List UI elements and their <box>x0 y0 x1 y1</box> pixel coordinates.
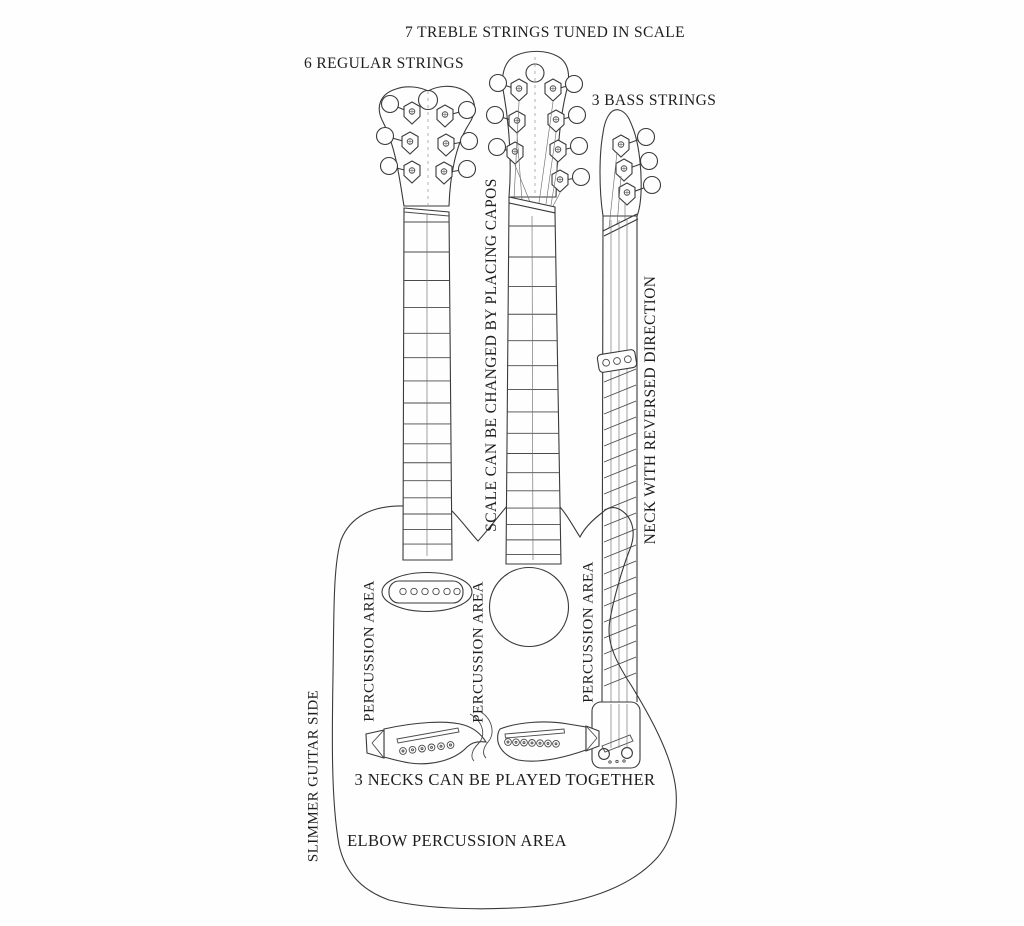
label-reversed-neck: NECK WITH REVERSED DIRECTION <box>642 276 660 545</box>
label-percussion-left: PERCUSSION AREA <box>362 580 379 721</box>
label-slimmer-side: SLIMMER GUITAR SIDE <box>306 690 323 862</box>
label-treble-strings: 7 TREBLE STRINGS TUNED IN SCALE <box>405 24 685 42</box>
label-regular-strings: 6 REGULAR STRINGS <box>304 55 464 73</box>
label-capos: SCALE CAN BE CHANGED BY PLACING CAPOS <box>483 178 501 532</box>
six-string-neck-drawing <box>377 86 478 611</box>
label-necks-together: 3 NECKS CAN BE PLAYED TOGETHER <box>355 770 656 790</box>
label-bass-strings: 3 BASS STRINGS <box>592 92 716 110</box>
label-elbow-percussion: ELBOW PERCUSSION AREA <box>347 831 567 851</box>
scanned-diagram-page: 7 TREBLE STRINGS TUNED IN SCALE 6 REGULA… <box>0 0 1024 926</box>
label-percussion-right: PERCUSSION AREA <box>581 561 598 702</box>
label-percussion-middle: PERCUSSION AREA <box>471 581 488 722</box>
seven-string-neck-drawing <box>487 51 590 646</box>
